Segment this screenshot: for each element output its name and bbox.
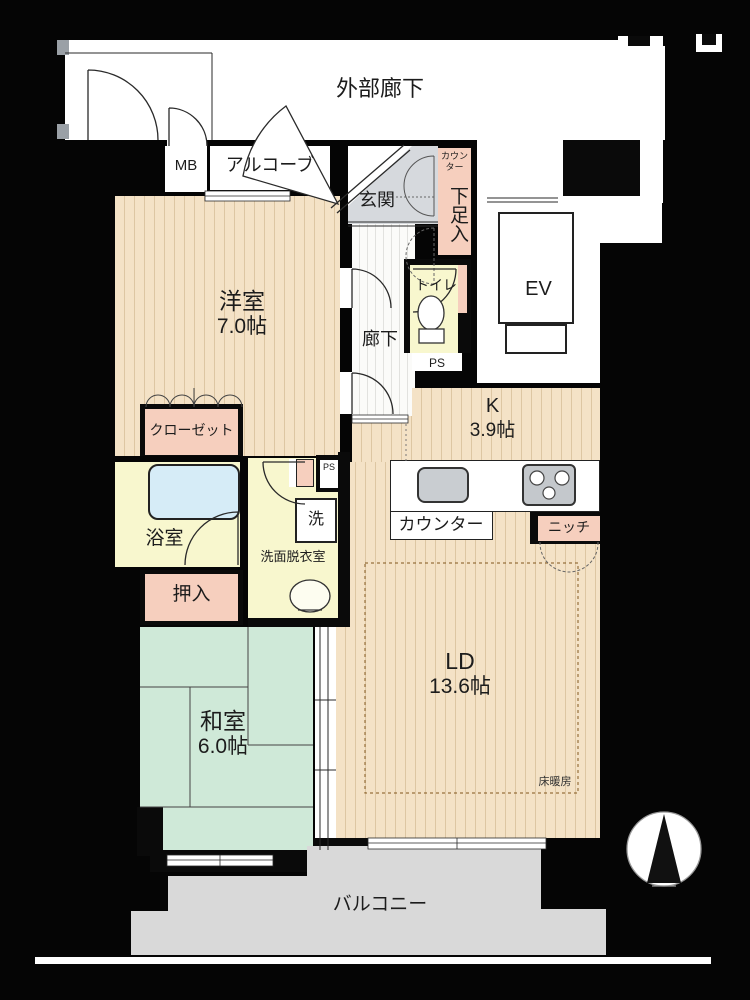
toilet-icon: [418, 296, 444, 330]
sliding-track-lines: [315, 627, 336, 850]
stove-burners: [530, 471, 569, 499]
washing-machine-label: 洗: [295, 511, 337, 530]
meter-box-label: MB: [165, 157, 207, 175]
balcony-label: バルコニー: [295, 894, 465, 916]
hallway-label: 廊下: [350, 329, 410, 350]
shoe-cabinet-label: 下足入: [442, 174, 468, 254]
exterior-corridor-label: 外部廊下: [305, 76, 455, 102]
western-room-door-arc: [352, 269, 391, 308]
ev-door-lines: [487, 198, 558, 202]
corridor-door-arc: [88, 70, 158, 140]
north-compass-icon: [627, 812, 701, 886]
living-dining-name: LD: [380, 648, 540, 675]
kitchen-name: K: [430, 395, 555, 419]
washroom-label: 洗面脱衣室: [243, 549, 343, 564]
elevator-label: EV: [477, 278, 600, 302]
western-door-opening-2: [340, 372, 352, 414]
pipe-space-hall-label: PS: [412, 356, 462, 370]
western-door-opening-1: [340, 268, 352, 308]
closet-folding-doors: [146, 388, 242, 407]
meter-box-door-arc: [169, 108, 207, 146]
western-room-name: 洋室: [152, 288, 332, 315]
washroom-door-arc: [263, 462, 305, 504]
genkan-edge-lines: [348, 222, 438, 226]
western-room-size: 7.0帖: [152, 315, 332, 340]
niche-dashed-arcs: [540, 542, 598, 572]
corridor-wall-lines: [65, 53, 212, 140]
japanese-room-size: 6.0帖: [158, 735, 288, 760]
living-dining-size: 13.6帖: [380, 675, 540, 700]
kitchen-counter-label: カウンター: [391, 515, 491, 535]
alcove-label: アルコーブ: [210, 155, 330, 176]
floor-heating-label: 床暖房: [530, 776, 580, 789]
pipe-space-wash-label: PS: [322, 462, 336, 473]
niche-label: ニッチ: [538, 519, 600, 536]
bathroom-label: 浴室: [122, 528, 207, 550]
plan-linework: [0, 0, 750, 1000]
hall-ld-door-arc: [352, 373, 393, 414]
entrance-label: 玄関: [348, 190, 406, 211]
shoe-counter-label: カウンター: [438, 151, 471, 172]
shoe-cabinet-door-arcs-lower: [406, 228, 434, 284]
floor-plan: 外部廊下 MB アルコーブ 玄関 カウンター 下足入 EV 廊下 トイレ PS …: [0, 0, 750, 1000]
closet-label: クローゼット: [145, 422, 238, 439]
kitchen-size: 3.9帖: [430, 420, 555, 442]
shoe-cabinet-door-arcs: [404, 156, 434, 216]
sink-icon: [290, 580, 330, 612]
oshiire-label: 押入: [143, 584, 240, 606]
toilet-label: トイレ: [406, 277, 466, 294]
japanese-room-name: 和室: [158, 708, 288, 735]
